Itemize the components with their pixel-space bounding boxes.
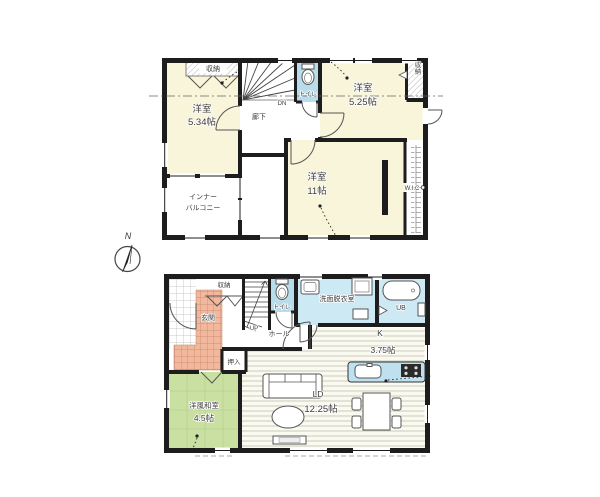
stairs-down-2f bbox=[240, 61, 295, 100]
bath-label: UB bbox=[396, 305, 406, 312]
floor2-plan: 洋室 5.34帖 収納 DN 廊下 トイレ 洋室 5.25帖 収納 洋室 11帖… bbox=[155, 50, 455, 250]
kitchen-name: K bbox=[377, 328, 383, 338]
hall-label: ホール bbox=[269, 330, 290, 338]
bedroom-b-name: 洋室 bbox=[353, 82, 372, 94]
toilet-icon-2f bbox=[302, 64, 314, 85]
balcony-line2: バルコニー bbox=[186, 204, 221, 212]
closet-a-label: 収納 bbox=[206, 64, 220, 73]
tatami-name: 洋風和室 bbox=[189, 400, 219, 410]
living-size: 12.25帖 bbox=[304, 403, 338, 415]
porch-tiles bbox=[169, 279, 196, 349]
closet-1f-label: 収納 bbox=[218, 280, 231, 289]
bedroom-c-name: 洋室 bbox=[307, 171, 326, 183]
stove-icon bbox=[401, 364, 421, 377]
stairs-up-1f bbox=[244, 281, 268, 331]
tv-board-icon bbox=[273, 436, 306, 444]
stairs-dn-label: DN bbox=[278, 101, 287, 107]
balcony-line1: インナー bbox=[189, 193, 217, 201]
floorplan-canvas: N bbox=[0, 0, 600, 497]
toilet-icon-1f bbox=[276, 279, 288, 300]
toilet-2f-label: トイレ bbox=[299, 92, 317, 98]
stairs-up-label: UP bbox=[250, 326, 258, 332]
compass: N bbox=[103, 226, 153, 284]
floor1-plan: 収納 玄関 UP トイレ 洗面脱衣室 UB ホール 押入 K 3.75帖 LD … bbox=[155, 265, 455, 465]
washer-icon bbox=[301, 280, 319, 294]
coffee-table-icon bbox=[272, 406, 304, 428]
living-name: LD bbox=[313, 389, 324, 399]
tatami-size: 4.5帖 bbox=[194, 413, 215, 423]
bedroom-b-size: 5.25帖 bbox=[349, 96, 377, 108]
corridor-label: 廊下 bbox=[252, 112, 266, 121]
bedroom-c-size: 11帖 bbox=[307, 185, 327, 197]
wic-knob-icon bbox=[421, 186, 425, 190]
kitchen-counter bbox=[348, 362, 425, 382]
entrance-label: 玄関 bbox=[201, 313, 215, 322]
oshiire-label: 押入 bbox=[228, 357, 242, 366]
washroom-label: 洗面脱衣室 bbox=[320, 294, 355, 303]
kitchen-size: 3.75帖 bbox=[370, 345, 396, 355]
bedroom-a-name: 洋室 bbox=[192, 103, 211, 115]
bedroom-a-size: 5.34帖 bbox=[188, 116, 216, 128]
compass-north-label: N bbox=[125, 231, 132, 241]
closet-bar-11 bbox=[382, 160, 388, 215]
toilet-1f-label: トイレ bbox=[273, 305, 291, 311]
wic-label: W.I.C bbox=[405, 186, 420, 192]
